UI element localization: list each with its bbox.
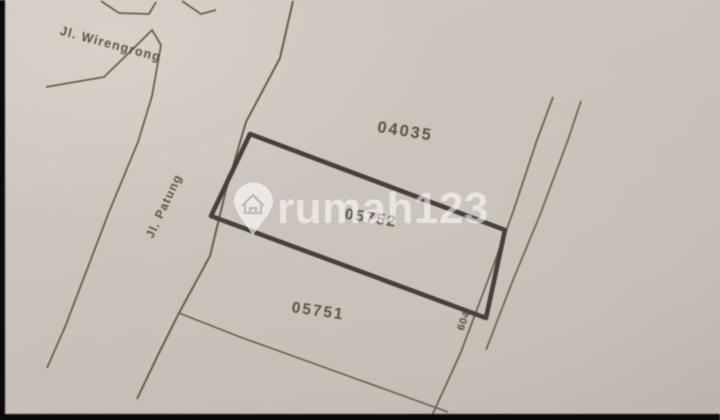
photo-edge-bar-bottom (0, 414, 720, 420)
photo-edge-bar-left (0, 0, 5, 420)
map-pin-house-icon (234, 183, 273, 237)
plot-map-photo: Jl. Wirengrong Jl. Patung 604 04035 0575… (0, 0, 720, 420)
watermark-brand-text: rumah123 (277, 184, 489, 234)
